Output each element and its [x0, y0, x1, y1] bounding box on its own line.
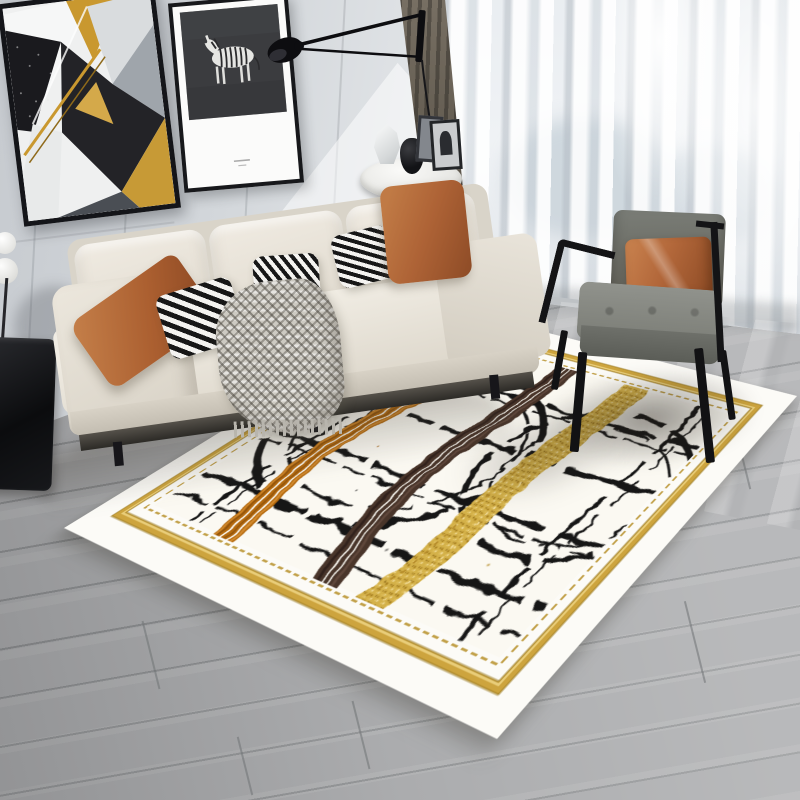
black-glossy-cabinet: [0, 337, 57, 491]
geometric-art: [3, 0, 176, 221]
lamp-wall-mount: [415, 10, 426, 62]
artwork-geometric-frame: [0, 0, 181, 227]
lamp-arm-upper: [302, 15, 420, 44]
picture-frame-arch: [429, 119, 462, 171]
throw-fringe: [234, 418, 346, 438]
orange-square-pillow: [379, 179, 473, 285]
living-room-scene: [0, 0, 800, 800]
arch-motif: [439, 131, 453, 156]
artist-signature-mark: [234, 159, 250, 162]
lamp-arm-lower: [302, 49, 422, 57]
